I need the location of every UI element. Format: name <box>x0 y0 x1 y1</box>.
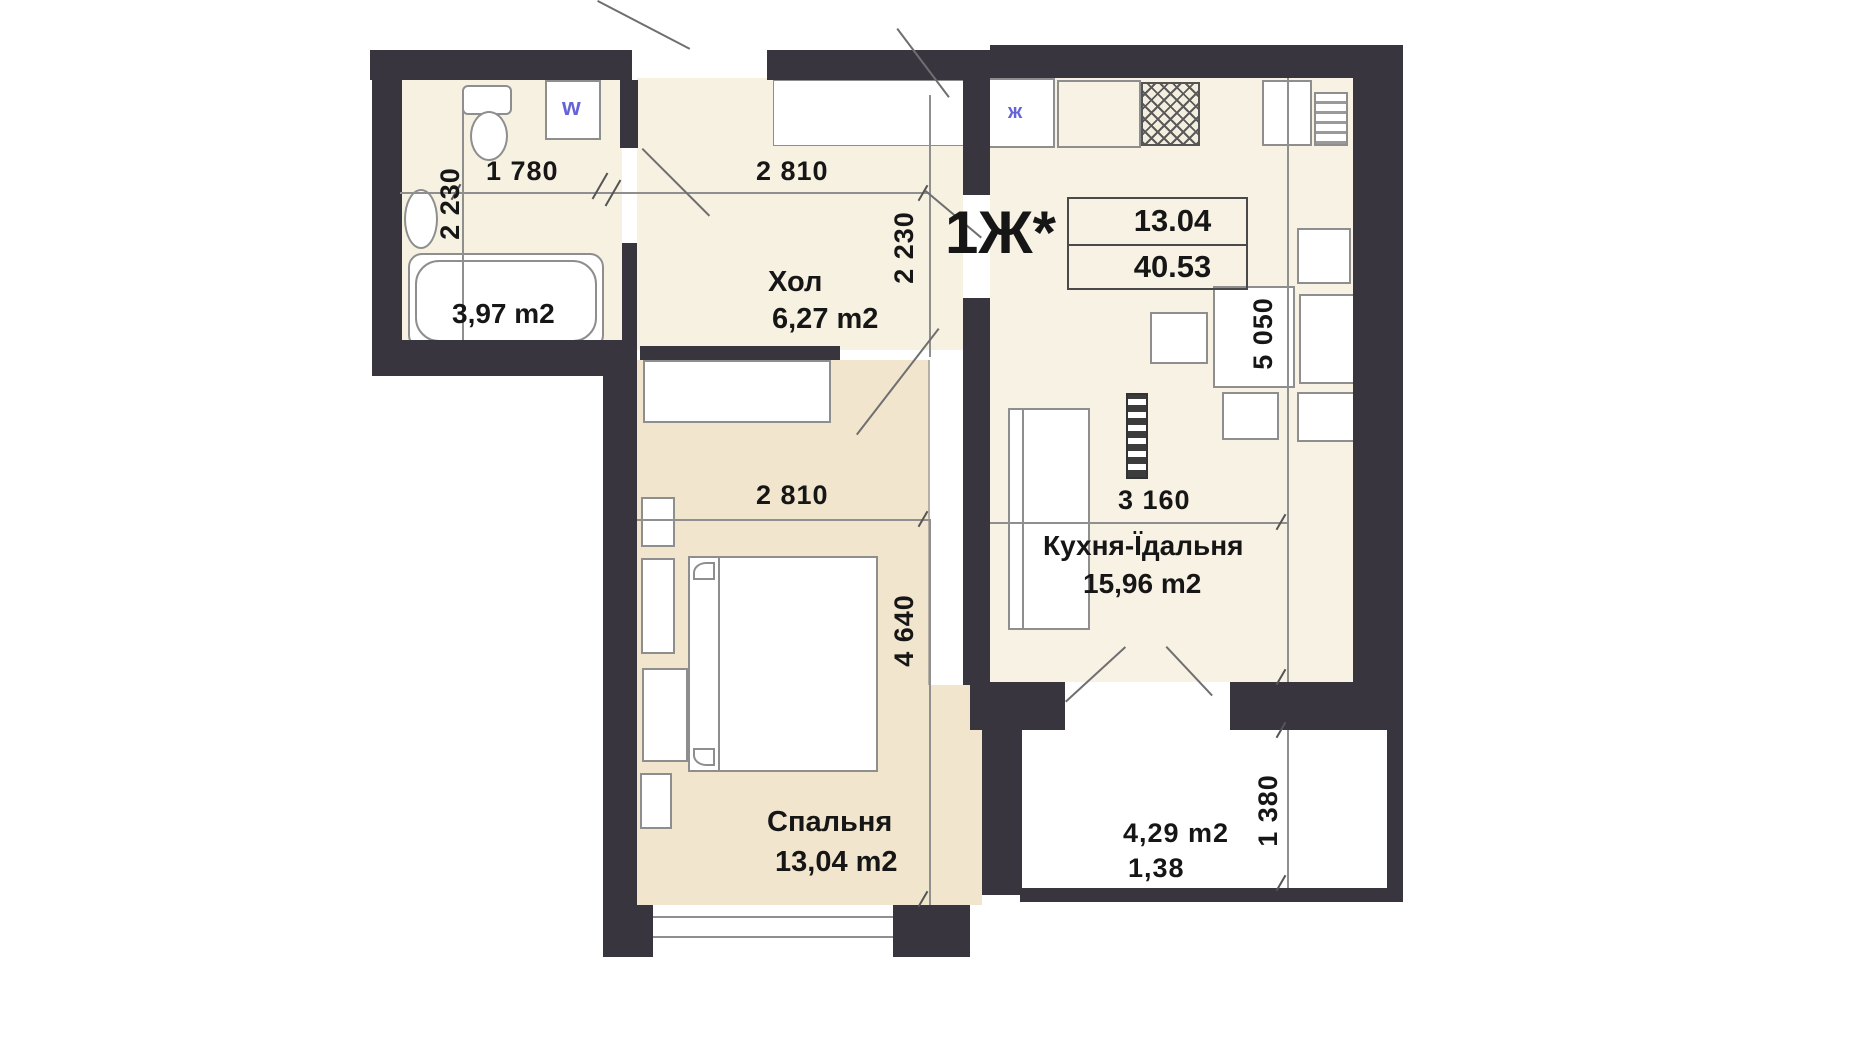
wall-hall-kitchen-lower <box>963 298 990 685</box>
dim-bathroom-width: 1 780 <box>486 158 559 185</box>
hall-closet <box>773 80 977 146</box>
wall-bedroom-bottom-right-post <box>893 905 970 957</box>
dim-hall-width: 2 810 <box>756 158 829 185</box>
chair-top-right <box>1297 228 1351 284</box>
wall-bathroom-right-upper <box>620 80 638 148</box>
wall-hall-kitchen-upper <box>963 78 990 195</box>
kitchen-counter <box>1057 80 1141 148</box>
kitchen-sofa <box>1008 408 1090 630</box>
wall-bathroom-right-lower <box>622 243 637 340</box>
dimline-bedroom-vertical <box>929 519 931 905</box>
pillow-top <box>693 562 715 580</box>
hall-area-label: 6,27 m2 <box>772 305 878 334</box>
dim-hall-depth: 2 230 <box>891 211 918 284</box>
bathroom-area-label: 3,97 m2 <box>452 300 555 328</box>
wall-hall-top <box>767 50 990 80</box>
chair-left <box>1150 312 1208 364</box>
dimline-bedroom-horizontal <box>637 519 930 521</box>
radiator-icon <box>1126 393 1148 479</box>
dim-bathroom-depth: 2 230 <box>437 167 464 240</box>
dimline-kitchen-horizontal <box>990 522 1288 524</box>
dim-bedroom-depth: 4 640 <box>891 594 918 667</box>
bathroom-sink <box>404 189 438 249</box>
chair-bottom-right <box>1297 392 1355 442</box>
wall-bathroom-top <box>370 50 632 80</box>
bedroom-area-label: 13,04 m2 <box>775 848 898 877</box>
bedside-cabinet-2 <box>642 668 688 762</box>
dimline-hall-vertical <box>929 95 931 357</box>
dim-balcony-depth: 1 380 <box>1255 774 1282 847</box>
nightstand-bottom <box>640 773 672 829</box>
wall-balcony-bottom-thin <box>1020 888 1403 902</box>
kitchen-sink-icon: ж <box>1008 102 1022 122</box>
stamp-total-area: 40.53 <box>1069 244 1246 289</box>
stamp-room-area: 13.04 <box>1069 199 1246 244</box>
hall-name-label: Хол <box>768 268 822 297</box>
bed-headboard-line <box>718 558 720 770</box>
floor-plan: w ж <box>0 0 1850 1040</box>
unit-stamp: 13.04 40.53 <box>1067 197 1248 290</box>
pillow-bottom <box>693 748 715 766</box>
unit-label: 1Ж* <box>945 203 1056 263</box>
dimline-top-horizontal <box>400 192 930 194</box>
kitchen-area-label: 15,96 m2 <box>1083 570 1201 598</box>
washer-icon: w <box>562 96 581 120</box>
bedroom-name-label: Спальня <box>767 808 892 837</box>
wall-bedroom-left <box>603 376 637 907</box>
balcony-area-label: 4,29 m2 <box>1123 820 1229 847</box>
wall-kitchen-right <box>1353 45 1403 685</box>
wall-balcony-left <box>982 730 1022 895</box>
wall-balcony-top-right <box>1230 682 1403 730</box>
balcony-coefficient-label: 1,38 <box>1128 855 1185 882</box>
wall-bathroom-bottom <box>372 340 637 376</box>
bed <box>688 556 878 772</box>
dim-kitchen-depth: 5 050 <box>1250 297 1277 370</box>
toilet-bowl <box>470 111 508 161</box>
kitchen-name-label: Кухня-Їдальня <box>1043 532 1243 560</box>
wall-bedroom-bottom-left-post <box>603 905 653 957</box>
bedroom-window <box>653 916 893 938</box>
nightstand-top <box>641 497 675 547</box>
wall-balcony-right-thin <box>1387 730 1403 902</box>
chair-bottom-left <box>1222 392 1279 440</box>
dim-kitchen-width: 3 160 <box>1118 487 1191 514</box>
shelf-unit <box>1314 92 1348 146</box>
dim-bedroom-width: 2 810 <box>756 482 829 509</box>
dimline-kitchen-vertical <box>1287 78 1289 682</box>
wall-bathroom-left <box>372 50 402 346</box>
stove <box>1141 82 1200 146</box>
sofa-backrest-line <box>1022 410 1024 628</box>
wall-bedroom-top <box>640 346 840 360</box>
bedside-cabinet-1 <box>641 558 675 654</box>
bedroom-wardrobe <box>643 360 831 423</box>
chair-right <box>1299 294 1355 384</box>
wall-kitchen-top <box>990 45 1403 78</box>
entrance-door-leaf <box>597 0 690 50</box>
dimline-balcony-vertical <box>1287 730 1289 888</box>
wall-balcony-top-left <box>970 682 1065 730</box>
